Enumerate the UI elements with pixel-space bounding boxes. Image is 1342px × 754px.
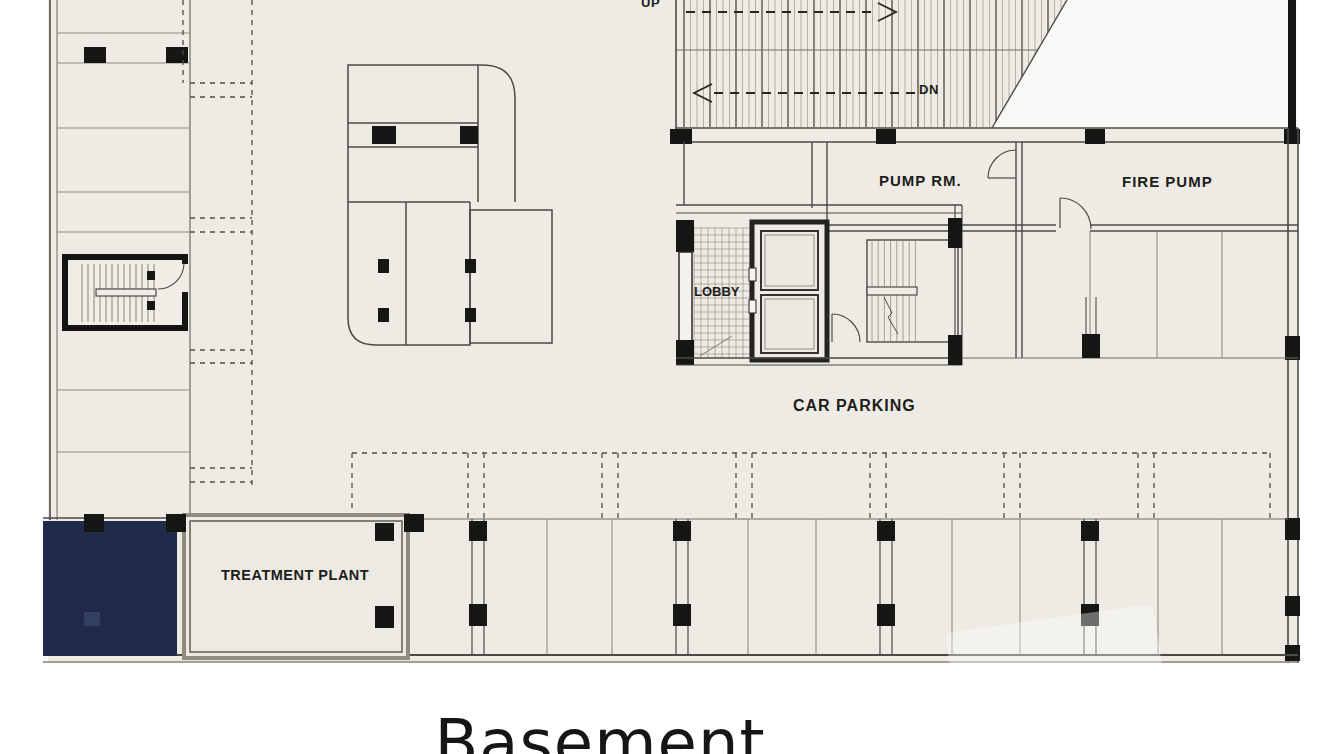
column (1285, 518, 1300, 540)
column (375, 606, 394, 628)
label-pump-room: PUMP RM. (879, 172, 962, 189)
column (876, 129, 896, 144)
wall-block (676, 340, 694, 365)
elevator-car (761, 231, 818, 290)
column (670, 129, 692, 144)
column (84, 47, 106, 63)
elevator-car (761, 295, 818, 353)
column (166, 514, 186, 532)
label-dn: DN (919, 82, 939, 97)
column (372, 126, 396, 144)
wall-block (948, 218, 962, 248)
treatment-plant-room (184, 515, 408, 658)
elevator-shaft (749, 222, 827, 360)
label-lobby: LOBBY (694, 284, 740, 299)
column (1285, 336, 1300, 360)
wall-block (948, 335, 962, 365)
column (375, 523, 394, 541)
label-car-parking: CAR PARKING (793, 397, 916, 415)
column (84, 514, 104, 532)
column (1285, 596, 1300, 616)
label-fire-pump: FIRE PUMP (1122, 173, 1213, 190)
column (404, 514, 424, 532)
column (166, 47, 188, 63)
basement-floor-plan: UP DN PUMP RM. FIRE PUMP LOBBY CAR PARKI… (0, 0, 1342, 754)
wall-block (676, 220, 694, 252)
sheet-title: Basement (300, 706, 900, 754)
column (1085, 129, 1105, 144)
column (1082, 334, 1100, 358)
column (1285, 645, 1300, 661)
label-up: UP (641, 0, 660, 10)
column (460, 126, 478, 144)
left-stairwell (65, 257, 188, 328)
label-treatment-plant: TREATMENT PLANT (221, 567, 369, 583)
